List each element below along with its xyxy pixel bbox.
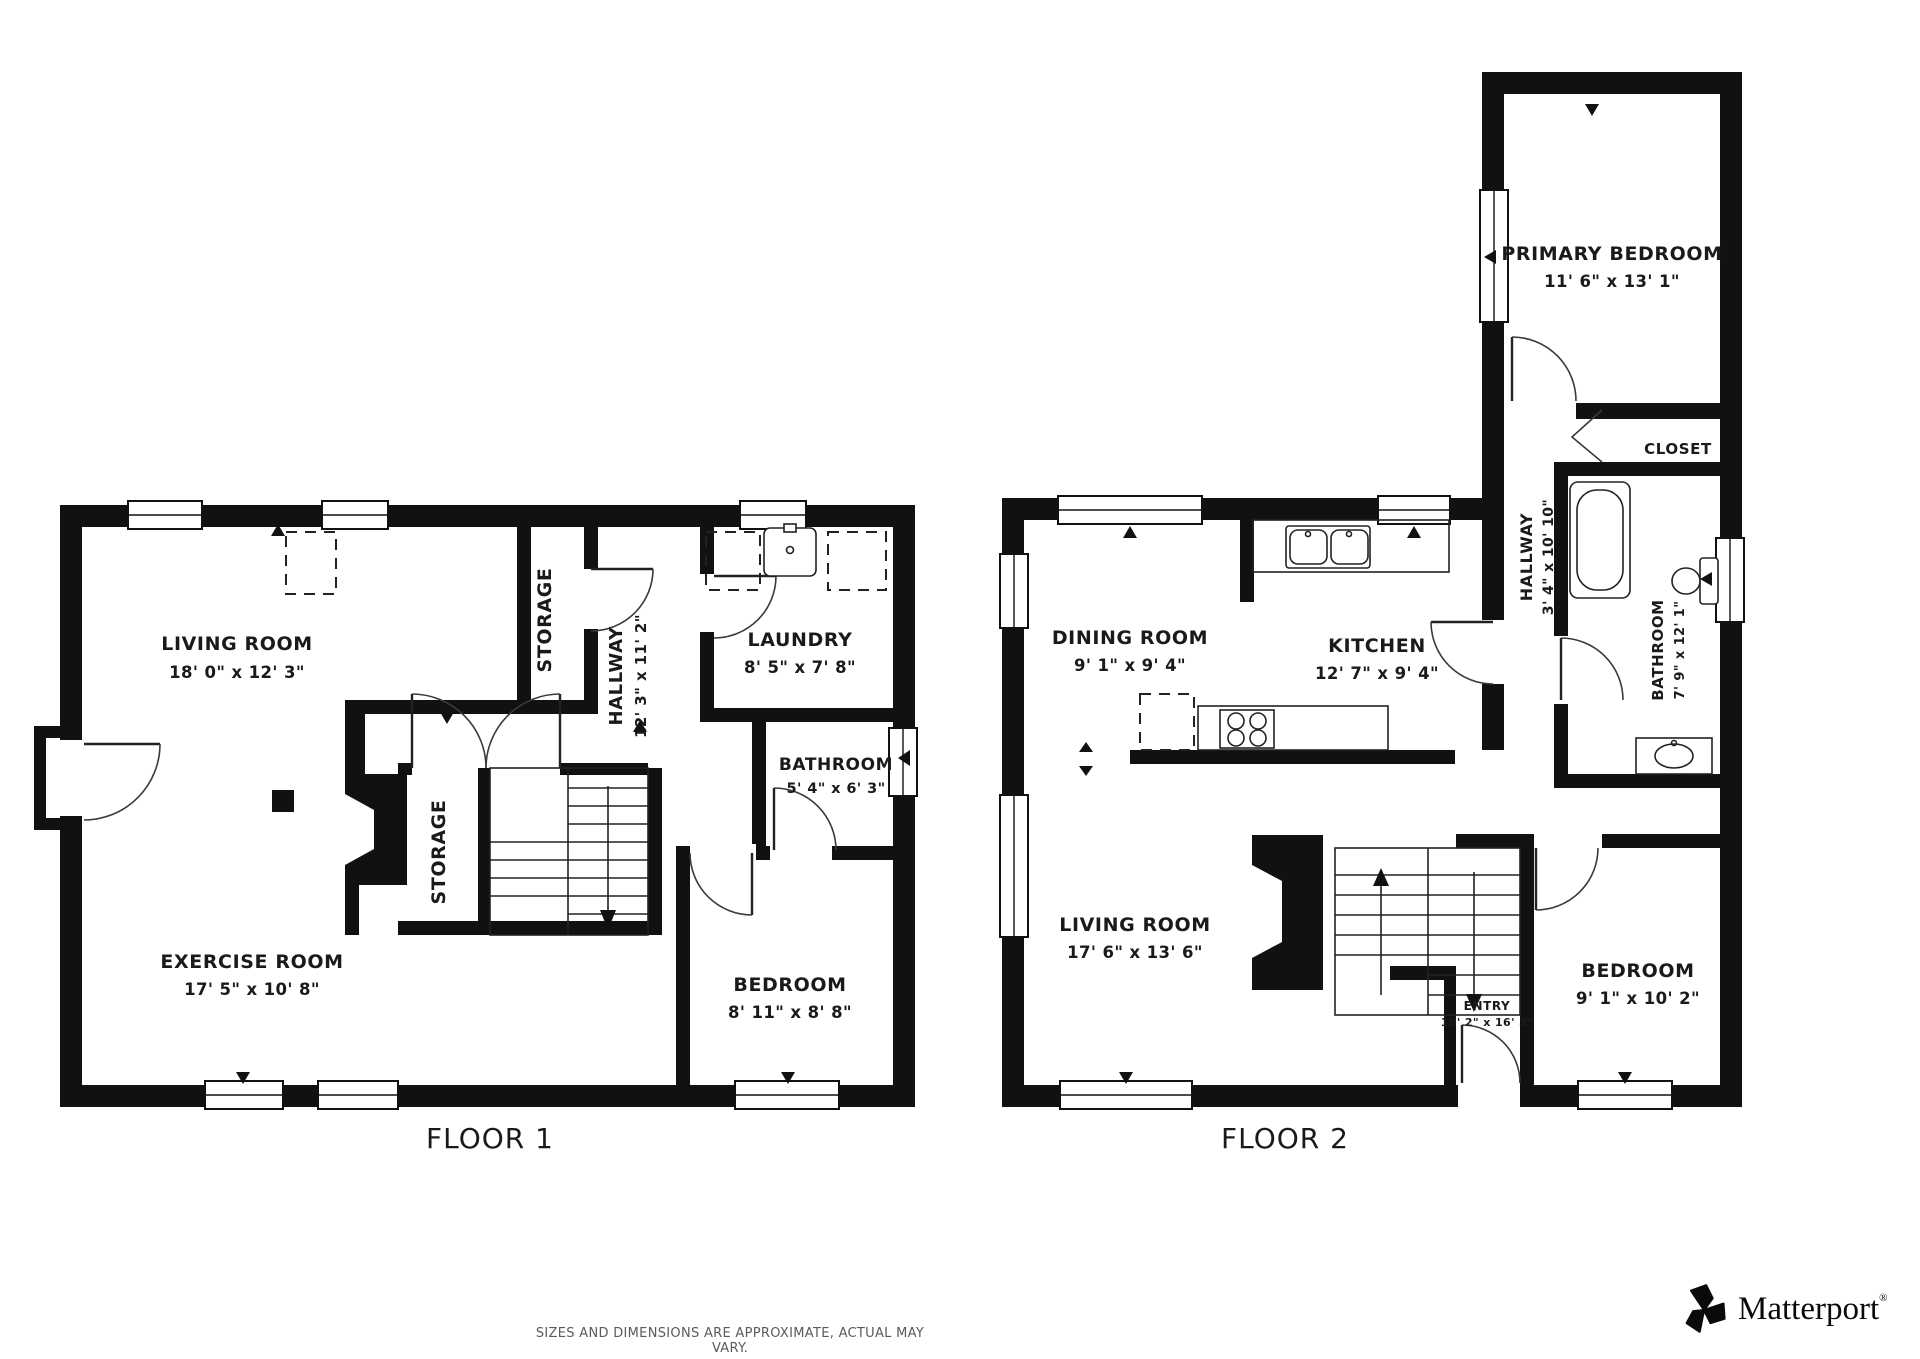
room-dims-bedroom-f1: 8' 11" x 8' 8" — [728, 1003, 852, 1022]
room-label-living-room-f2: LIVING ROOM — [1059, 914, 1211, 936]
room-dims-bathroom-f1: 5' 4" x 6' 3" — [786, 781, 885, 797]
floor2-bathroom-fixtures — [1570, 482, 1718, 774]
entry-door-opening — [1458, 1083, 1520, 1107]
floorplan-page: LIVING ROOM 18' 0" x 12' 3" STORAGE HALL… — [0, 0, 1920, 1359]
room-dims-living-room-f1: 18' 0" x 12' 3" — [169, 663, 305, 682]
room-label-exercise-room-f1: EXERCISE ROOM — [160, 951, 343, 973]
floorplan-canvas: LIVING ROOM 18' 0" x 12' 3" STORAGE HALL… — [0, 0, 1920, 1359]
floor2-chimney — [1252, 835, 1323, 990]
room-label-dining-room-f2: DINING ROOM — [1052, 627, 1208, 649]
room-label-storage-bottom-f1: STORAGE — [428, 800, 450, 905]
floor2-title: FLOOR 2 — [1221, 1122, 1349, 1155]
matterport-branding: Matterport® — [1680, 1282, 1887, 1336]
room-dims-exercise-room-f1: 17' 5" x 10' 8" — [184, 980, 320, 999]
room-label-hallway-f1: HALLWAY — [606, 626, 627, 725]
room-label-bathroom-f1: BATHROOM — [779, 755, 893, 775]
room-label-bathroom-f2: BATHROOM — [1649, 599, 1667, 700]
refrigerator-box — [1140, 694, 1194, 750]
bathtub — [1570, 482, 1630, 598]
support-post — [272, 790, 294, 812]
stove — [1220, 710, 1274, 748]
room-dims-bathroom-f2: 7' 9" x 12' 1" — [1673, 601, 1688, 700]
room-dims-entry-f2: 10' 2" x 16' 3" — [1441, 1016, 1534, 1029]
floor1-title: FLOOR 1 — [426, 1122, 554, 1155]
room-label-living-room-f1: LIVING ROOM — [161, 633, 313, 655]
floor2-stairs — [1335, 848, 1520, 1015]
laundry-sink — [764, 524, 816, 576]
bathroom-sink — [1636, 738, 1712, 774]
floor1-plan: LIVING ROOM 18' 0" x 12' 3" STORAGE HALL… — [34, 501, 917, 1155]
washer-box — [706, 532, 760, 590]
floor1-stairs — [490, 768, 648, 935]
room-dims-laundry-f1: 8' 5" x 7' 8" — [744, 658, 856, 677]
registered-trademark: ® — [1879, 1292, 1887, 1304]
room-dims-dining-room-f2: 9' 1" x 9' 4" — [1074, 656, 1186, 675]
floor1-chimney — [272, 774, 407, 885]
matterport-wordmark: Matterport® — [1738, 1291, 1887, 1328]
floor2-room-labels: PRIMARY BEDROOM 11' 6" x 13' 1" CLOSET H… — [1052, 243, 1723, 1029]
stairs-up-arrow — [1373, 868, 1389, 886]
disclaimer-text: SIZES AND DIMENSIONS ARE APPROXIMATE, AC… — [520, 1326, 940, 1356]
room-dims-hallway-f1: 12' 3" x 11' 2" — [632, 614, 650, 738]
room-dims-bedroom-f2: 9' 1" x 10' 2" — [1576, 989, 1700, 1008]
room-label-hallway-f2: HALLWAY — [1517, 513, 1536, 602]
room-label-storage-top-f1: STORAGE — [534, 568, 556, 673]
floor1-doors — [84, 569, 836, 915]
room-label-closet-f2: CLOSET — [1644, 440, 1712, 458]
room-dims-hallway-f2: 3' 4" x 10' 10" — [1541, 499, 1557, 615]
dashed-appliance-box — [286, 532, 336, 594]
room-label-entry-f2: ENTRY — [1464, 999, 1511, 1013]
room-dims-living-room-f2: 17' 6" x 13' 6" — [1067, 943, 1203, 962]
matterport-logo-icon — [1680, 1282, 1728, 1336]
dryer-box — [828, 532, 886, 590]
room-label-kitchen-f2: KITCHEN — [1328, 635, 1426, 657]
room-dims-primary-bedroom-f2: 11' 6" x 13' 1" — [1544, 272, 1680, 291]
room-label-bedroom-f1: BEDROOM — [733, 974, 846, 996]
room-label-primary-bedroom-f2: PRIMARY BEDROOM — [1501, 243, 1722, 265]
floor2-plan: PRIMARY BEDROOM 11' 6" x 13' 1" CLOSET H… — [1000, 72, 1744, 1155]
kitchen-double-sink — [1286, 526, 1370, 568]
kitchen-lower-counter — [1198, 706, 1388, 750]
room-dims-kitchen-f2: 12' 7" x 9' 4" — [1315, 664, 1439, 683]
room-label-laundry-f1: LAUNDRY — [748, 629, 853, 651]
room-label-bedroom-f2: BEDROOM — [1581, 960, 1694, 982]
